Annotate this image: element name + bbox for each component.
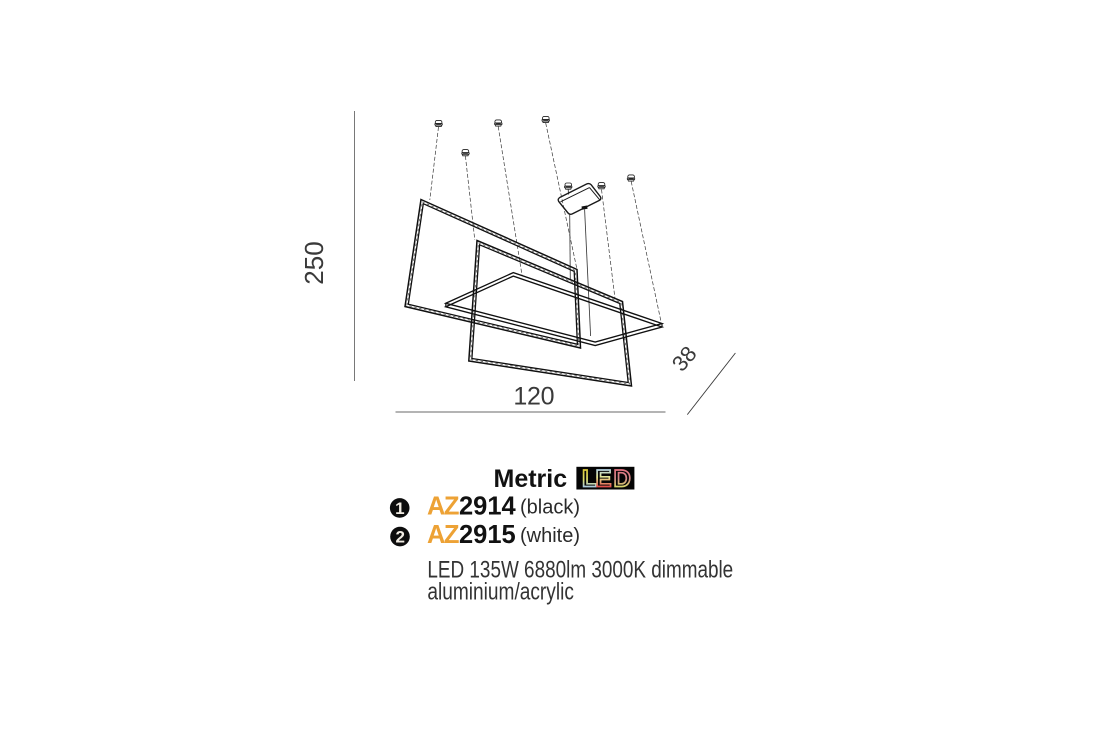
svg-text:L: L (582, 466, 597, 493)
svg-text:AZ2915: AZ2915 (427, 521, 516, 549)
svg-text:(black): (black) (520, 497, 580, 519)
svg-text:120: 120 (513, 383, 554, 411)
svg-text:38: 38 (667, 341, 702, 376)
svg-text:(white): (white) (520, 525, 580, 547)
svg-text:250: 250 (299, 241, 329, 284)
svg-text:E: E (596, 466, 612, 493)
svg-text:Metric: Metric (494, 465, 568, 493)
svg-text:D: D (614, 466, 631, 493)
svg-text:aluminium/acrylic: aluminium/acrylic (427, 578, 574, 605)
svg-text:2: 2 (395, 528, 404, 547)
svg-text:1: 1 (395, 499, 404, 518)
svg-text:AZ2914: AZ2914 (427, 493, 517, 521)
